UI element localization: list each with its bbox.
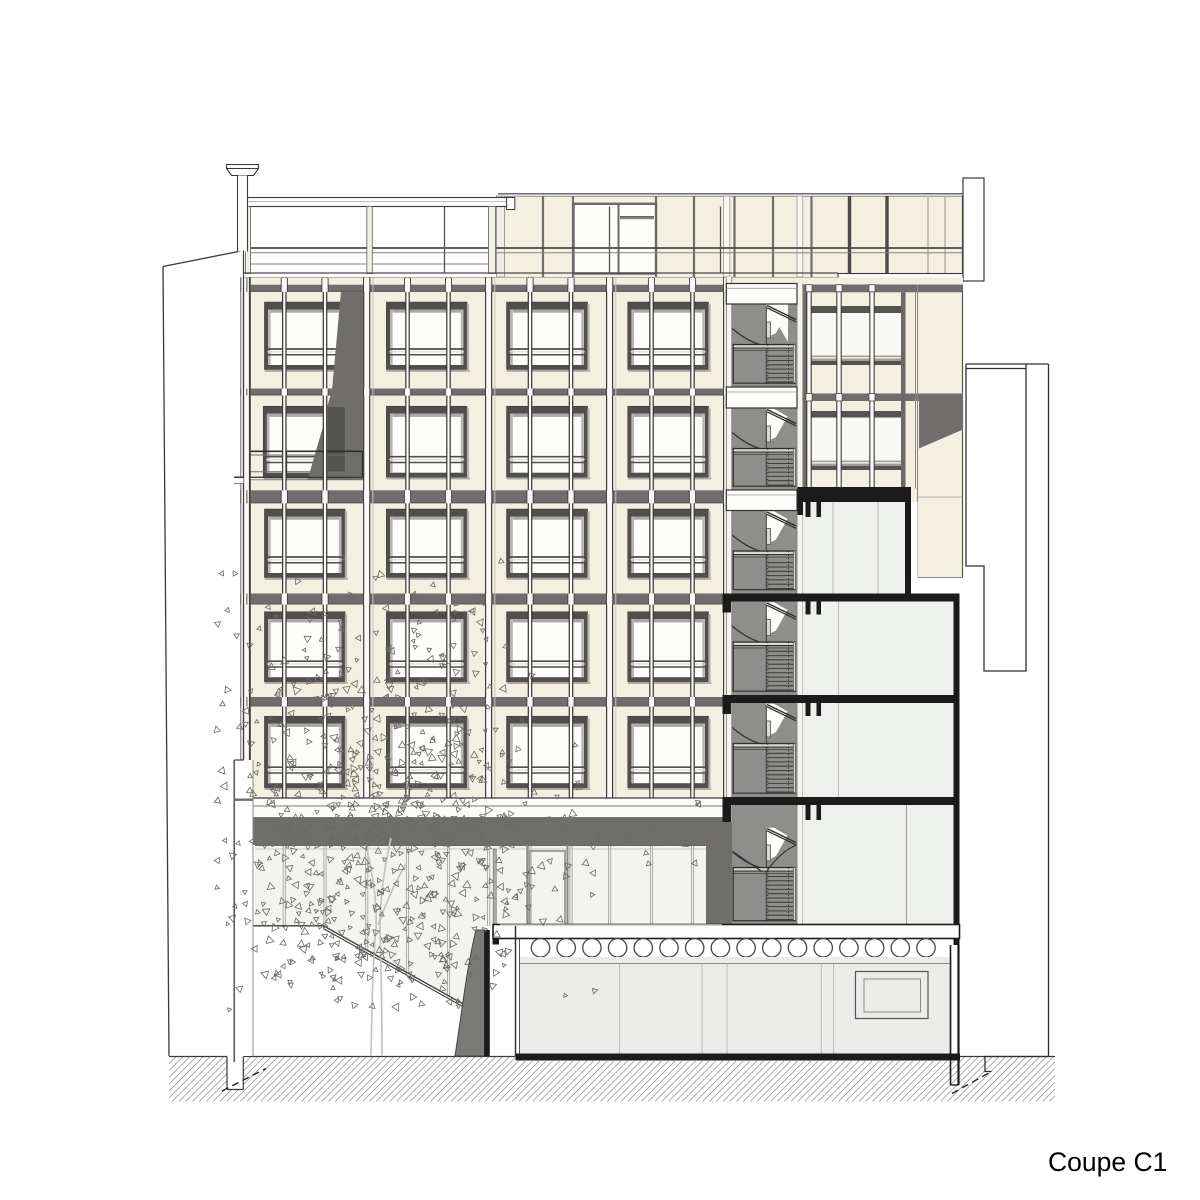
svg-text:Coupe C1: Coupe C1 [1048, 1147, 1167, 1177]
